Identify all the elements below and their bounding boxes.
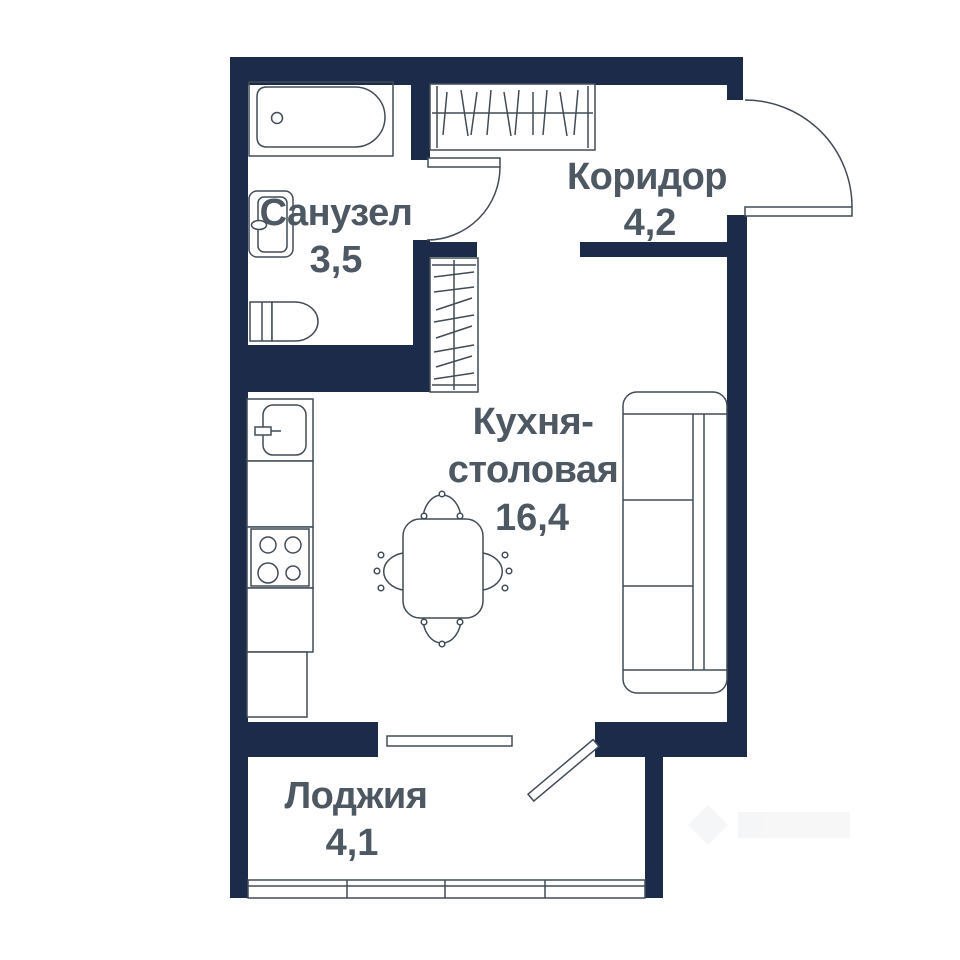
entrance-door-arc bbox=[745, 100, 852, 207]
bathroom-door-arc bbox=[427, 167, 500, 240]
kitchen-area: 16,4 bbox=[432, 499, 632, 537]
loggia-area: 4,1 bbox=[252, 824, 452, 862]
wardrobe-hall bbox=[430, 258, 478, 392]
loggia-label: Лоджия bbox=[256, 777, 456, 815]
balcony-door-leaf bbox=[528, 740, 599, 802]
wardrobe-corridor bbox=[430, 84, 595, 150]
kitchen-faucet bbox=[255, 427, 271, 435]
bathtub-drain bbox=[272, 113, 283, 124]
bathroom-area: 3,5 bbox=[236, 241, 436, 279]
entrance-door-leaf bbox=[745, 207, 852, 216]
wall-kitchen-bottom-right bbox=[595, 722, 745, 757]
bathtub bbox=[249, 82, 393, 156]
wall-top bbox=[230, 57, 743, 85]
sofa bbox=[623, 392, 727, 693]
bathroom-door-leaf bbox=[428, 158, 500, 167]
watermark bbox=[688, 805, 850, 845]
wall-left bbox=[230, 57, 248, 898]
bathroom-door bbox=[427, 158, 500, 240]
counter-segment bbox=[247, 652, 307, 717]
wall-right-top bbox=[727, 57, 743, 100]
stove bbox=[251, 529, 309, 586]
toilet bbox=[250, 302, 318, 341]
bathroom-label: Санузел bbox=[236, 194, 436, 232]
wall-corridor-bottom bbox=[580, 242, 745, 257]
chair-left bbox=[374, 552, 403, 591]
corridor-area: 4,2 bbox=[550, 204, 750, 242]
wall-bathroom-bottom bbox=[230, 345, 430, 392]
balcony-window bbox=[387, 736, 512, 746]
counter-segment bbox=[247, 588, 313, 652]
kitchen-sink bbox=[255, 405, 306, 455]
kitchen-label-line1: Кухня- bbox=[433, 403, 633, 441]
entrance-door bbox=[745, 100, 852, 216]
loggia-window bbox=[248, 880, 645, 898]
counter-segment bbox=[247, 461, 313, 527]
kitchen-label-line2: столовая bbox=[433, 451, 633, 489]
corridor-label: Коридор bbox=[547, 158, 747, 196]
wall-kitchen-bottom-left bbox=[230, 722, 378, 757]
chair-bottom bbox=[421, 618, 463, 647]
wall-loggia-right bbox=[645, 757, 663, 898]
wall-bathroom-right bbox=[411, 57, 430, 160]
chair-right bbox=[483, 552, 512, 591]
floor-plan: Санузел 3,5 Коридор 4,2 Кухня- столовая … bbox=[0, 0, 960, 960]
wall-right-main bbox=[727, 215, 747, 757]
